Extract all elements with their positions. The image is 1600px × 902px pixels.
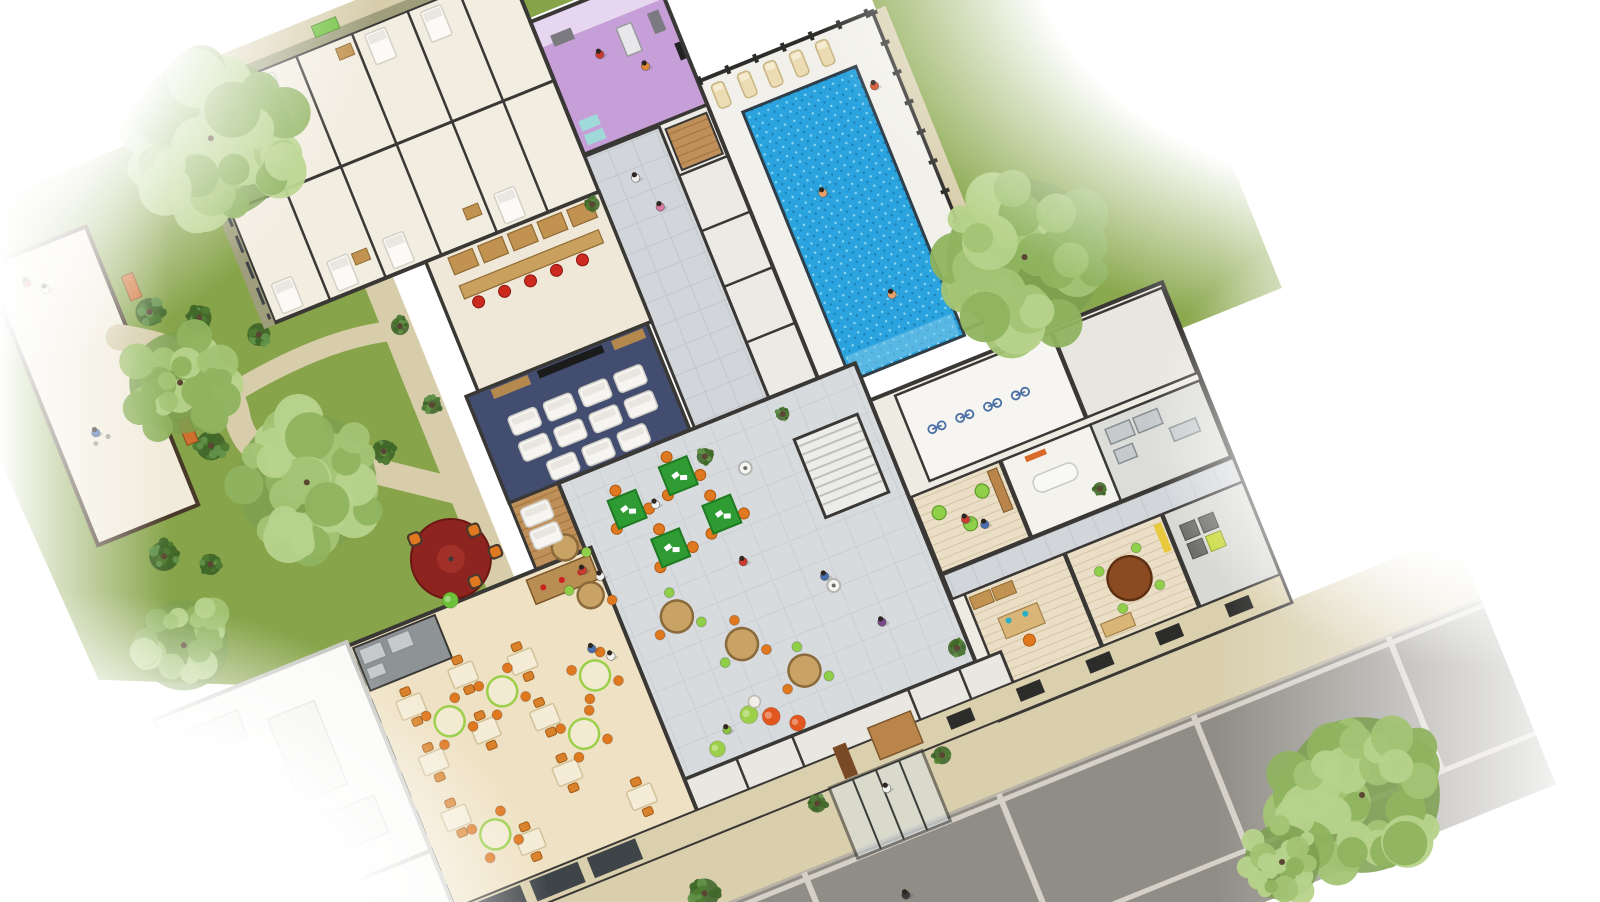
rotated-plan [0,0,1600,902]
plan-canvas [0,0,1600,902]
floorplan-rendering [0,0,1600,902]
